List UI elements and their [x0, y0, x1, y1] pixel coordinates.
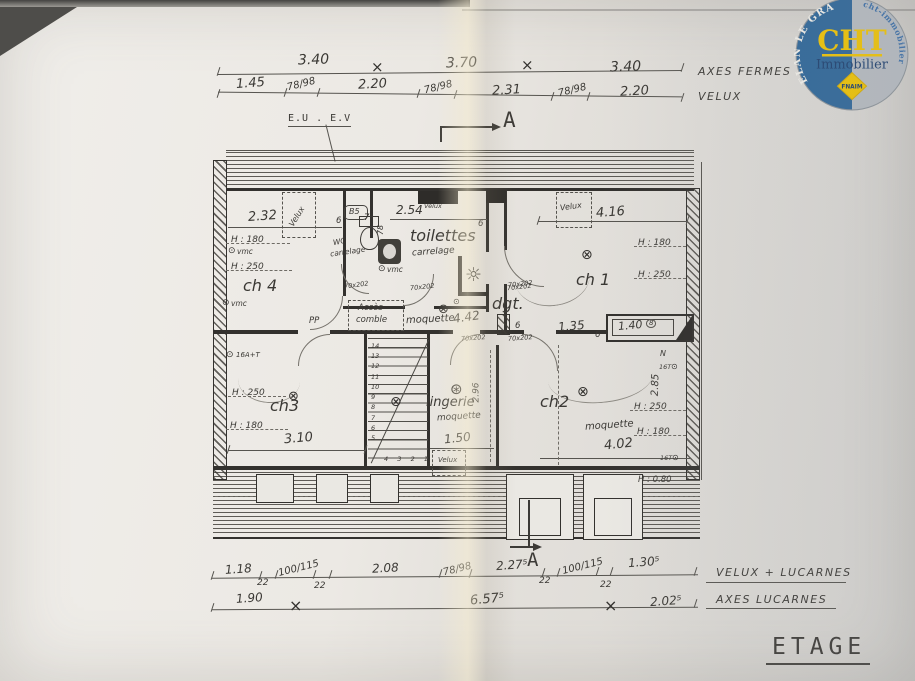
roof-hatch-top [226, 152, 694, 189]
vmc-icon: ⊙ [228, 247, 236, 256]
dimension-value: 1.35 [558, 319, 586, 333]
dimension-value: 1.30⁵ [628, 555, 660, 569]
dimension-value: 78/98 [286, 77, 316, 94]
dimension-value: 2.32 [248, 209, 278, 224]
outlet-label: 16T [660, 455, 672, 462]
logo-subtitle: Immobilier [816, 58, 889, 73]
vmc-icon: ⊙ [453, 298, 460, 306]
dormer-window [519, 498, 561, 536]
wc-label: WC [332, 237, 346, 247]
room-name-ch4: ch 4 [243, 278, 277, 294]
wall-left [213, 160, 227, 480]
stair-step-numbers: 1413 1211 109 87 65 [371, 342, 379, 442]
dimension-value: 1.90 [236, 591, 263, 605]
dimension-value: 1.18 [225, 562, 252, 576]
axis-mark: × [289, 598, 302, 614]
photo-corner-shadow [0, 0, 88, 56]
sill-height-note: H : 0.80 [638, 476, 672, 485]
paper-top-edge [0, 0, 470, 7]
dimension-value: 2.85 [651, 374, 662, 397]
vmc-icon: ⊙ [222, 299, 230, 308]
bottom-dim-label-1: VELUX + LUCARNES [716, 567, 852, 578]
bottom-dim-label-2: AXES LUCARNES [716, 594, 827, 605]
door-size: 70x202 [508, 334, 533, 342]
bottom-dim-line-2 [212, 607, 698, 611]
height-note: H : 180 [638, 239, 671, 248]
ceiling-light-icon: ⊗ [390, 395, 402, 409]
eu-ev-note: E.U . E.V [288, 114, 351, 127]
dimension-value: 1.45 [236, 76, 266, 91]
dimension-value: 22 [539, 577, 550, 586]
ceiling-light-icon: ⊗ [581, 248, 593, 262]
ceiling-light-icon: ⊗ [438, 303, 449, 316]
dimension-value: 78/98 [557, 83, 587, 100]
vmc-icon: ⊙ [378, 265, 386, 274]
ceiling-light-icon: ⊗ [288, 390, 299, 403]
section-letter-top: A [503, 110, 516, 131]
dimension-value: 2.54 [396, 204, 423, 216]
dimension-value: 22 [257, 579, 268, 588]
logo-brand: CHT [817, 24, 887, 57]
dormer-small [316, 474, 348, 503]
velux-label: Velux [424, 203, 442, 210]
outlet-label: 16A+T [236, 352, 260, 359]
height-note: H : 250 [634, 403, 667, 412]
page-title: ETAGE [772, 636, 866, 659]
attic-access-label: comble [356, 316, 387, 325]
outlet-label: 16T [659, 364, 671, 371]
room-name-ch1: ch 1 [576, 272, 610, 288]
wall-tag: 6 [478, 220, 483, 229]
top-dim-label-2: VELUX [698, 91, 742, 102]
north-note: N [660, 350, 666, 358]
logo-underline [822, 54, 882, 56]
outlet-icon: ⊙ [226, 351, 234, 360]
room-name-ch2: ch2 [540, 394, 569, 410]
door-size: 70x202 [410, 283, 435, 292]
dimension-value: 4.42 [452, 309, 480, 325]
dimension-value: 22 [600, 581, 611, 590]
spot-light-icon: ☼ [465, 266, 482, 285]
wall-tag: 6 [336, 217, 341, 226]
fnaim-label: FNAIM [841, 85, 862, 91]
floor-note: moquette [585, 419, 634, 432]
axis-mark: × [521, 58, 534, 73]
radiator-label: B5 [349, 208, 360, 216]
wall-tag: 6 [515, 322, 520, 331]
dormer-small [370, 474, 399, 503]
dimension-value: 4.16 [596, 205, 626, 220]
scanned-floor-plan: PLELAN LE GRAND www.cht-immobilier.com C… [0, 0, 915, 681]
floor-note: carrelage [412, 247, 455, 259]
height-note: H : 180 [230, 422, 263, 431]
velux-label: Velux [438, 457, 457, 464]
room-name-toilettes: toilettes [410, 228, 476, 244]
dormer-small [256, 474, 294, 503]
height-note: H : 180 [231, 236, 264, 245]
axis-mark: × [604, 598, 617, 614]
dimension-value: 6.57⁵ [469, 592, 504, 608]
dimension-value: 2.20 [358, 77, 388, 91]
dimension-value: 1.50 [443, 431, 471, 446]
height-note: H : 250 [232, 389, 265, 398]
outlet-icon: ⊙ [672, 454, 679, 462]
door-size: 70x202 [461, 334, 486, 342]
vmc-label: vmc [231, 300, 247, 308]
dimension-value: 22 [314, 582, 325, 591]
wall-tag: 6 [595, 331, 600, 340]
dimension-value: 1.40 [618, 319, 643, 332]
attic-access-label: Accès [358, 304, 383, 313]
dormer-window [594, 498, 632, 536]
dimension-value: 3.70 [446, 55, 478, 70]
section-letter-bottom: A [527, 551, 538, 570]
dimension-value: 2.31 [492, 83, 522, 97]
door-arc-ch3 [298, 334, 330, 366]
dimension-value: 2.08 [372, 561, 399, 574]
ceiling-light-icon: ⊗ [577, 385, 589, 399]
title-underline [766, 663, 870, 665]
fan-icon: ⊛ [450, 382, 463, 397]
height-note: H : 250 [638, 271, 671, 280]
agency-logo: PLELAN LE GRAND www.cht-immobilier.com C… [794, 0, 910, 112]
stair-step-numbers-bottom: 43 21 [384, 455, 428, 463]
dimension-value: 2.20 [620, 84, 650, 98]
room-name-dgt: dgt. [492, 296, 524, 312]
height-note: H : 180 [637, 428, 670, 437]
dimension-value: 4.02 [603, 437, 633, 453]
section-arrow-top [492, 123, 501, 131]
dimension-value: 2.27⁵ [496, 558, 528, 572]
wc-tank [359, 216, 379, 227]
dimension-value: 2.96 [473, 382, 482, 402]
vmc-label: vmc [237, 248, 253, 256]
dimension-value: 3.40 [298, 52, 330, 67]
dimension-value: 2.02⁵ [650, 594, 682, 608]
outlet-icon: ⊙ [671, 363, 678, 371]
height-note: H : 250 [231, 263, 264, 272]
floor-note: moquette [437, 411, 481, 423]
axis-mark: × [371, 60, 384, 75]
pp-note: PP [309, 317, 319, 326]
wc-floor-label: carrelage [330, 246, 366, 258]
dimension-value: 3.40 [610, 59, 642, 74]
dimension-value: 3.10 [283, 431, 313, 446]
top-dim-label-1: AXES FERMES [698, 66, 791, 77]
dimension-value: 100/115 [561, 557, 604, 577]
vmc-label: vmc [387, 266, 403, 274]
